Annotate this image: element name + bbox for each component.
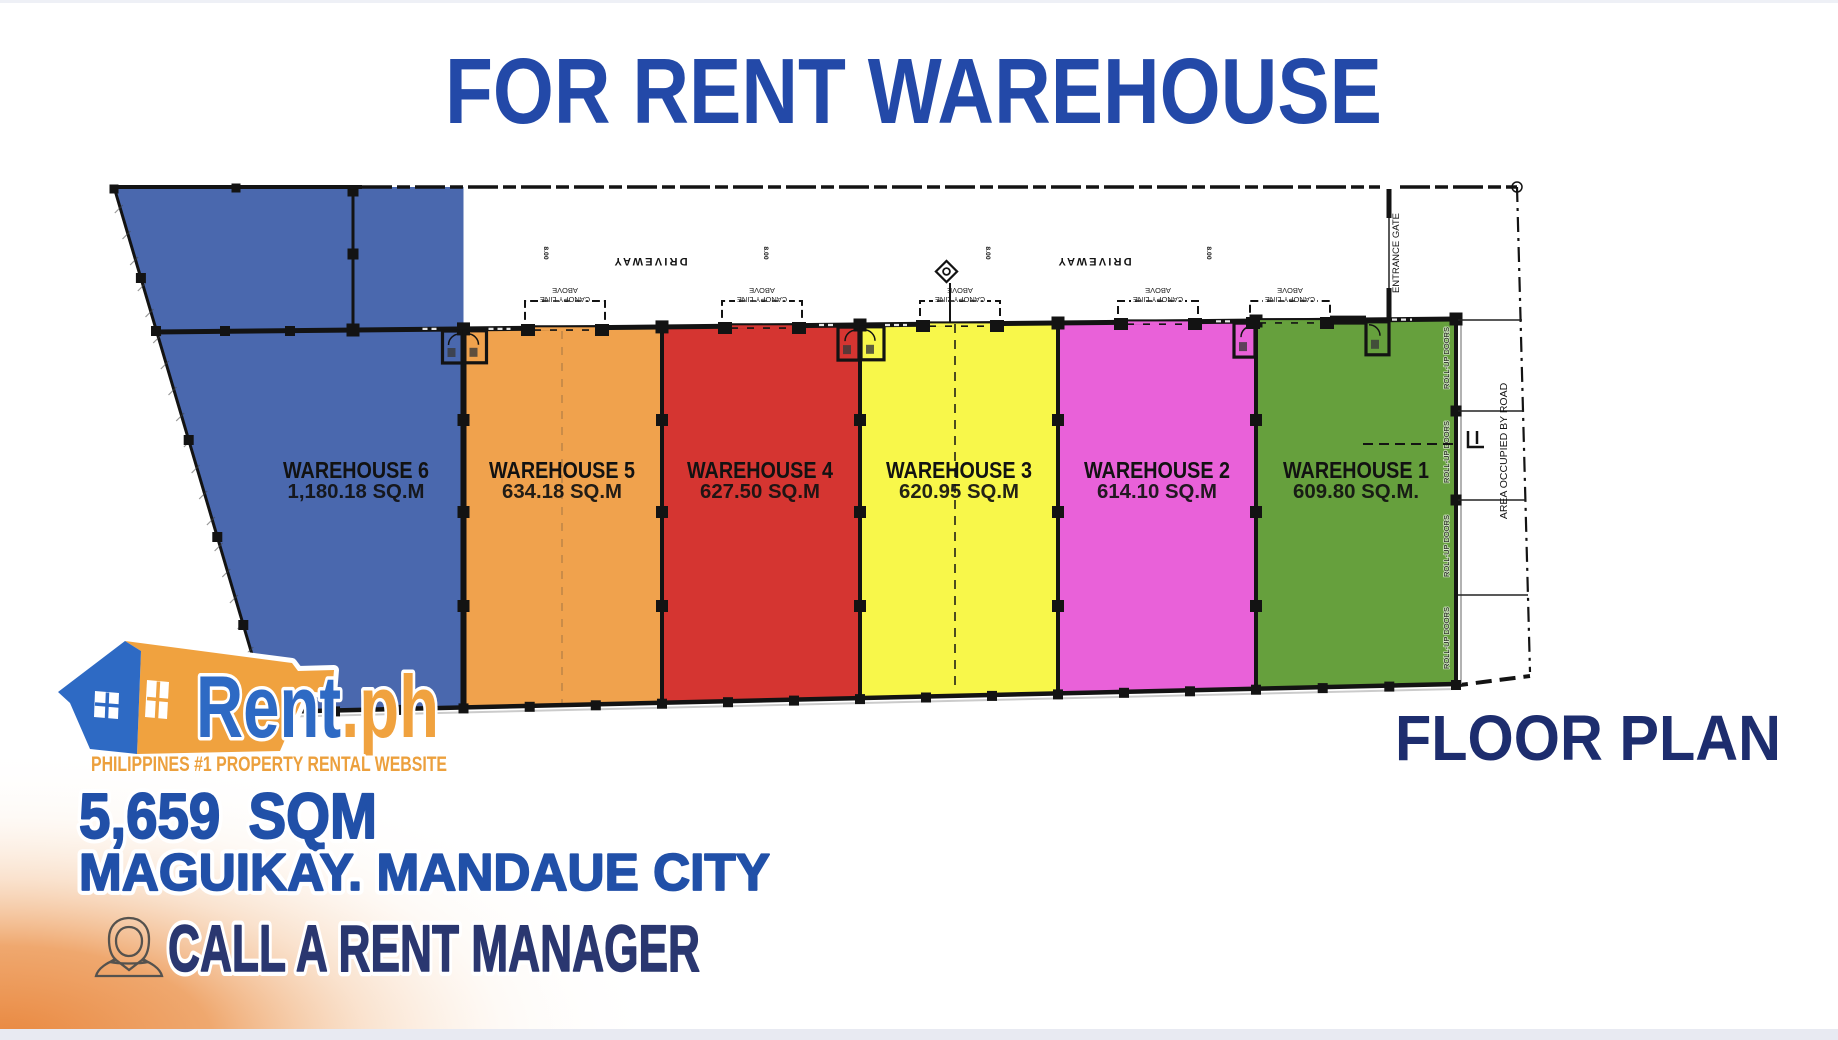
svg-text:ROLL-UP DOORS: ROLL-UP DOORS [1442, 607, 1451, 669]
svg-text:CANOPY LINE: CANOPY LINE [737, 295, 787, 304]
svg-text:CANOPY LINE: CANOPY LINE [935, 295, 985, 304]
svg-text:ROLL-UP DOORS: ROLL-UP DOORS [1442, 327, 1451, 389]
svg-text:ENTRANCE GATE: ENTRANCE GATE [1391, 213, 1402, 293]
svg-text:ABOVE: ABOVE [1277, 286, 1303, 295]
svg-text:CALL A RENT MANAGER: CALL A RENT MANAGER [168, 911, 700, 985]
svg-text:5,659 SQM: 5,659 SQM [79, 780, 377, 852]
svg-text:8.00: 8.00 [1205, 246, 1212, 259]
svg-text:FLOOR PLAN: FLOOR PLAN [1395, 702, 1781, 774]
svg-text:ABOVE: ABOVE [1145, 286, 1171, 295]
svg-text:8.00: 8.00 [984, 246, 991, 259]
svg-text:CANOPY LINE: CANOPY LINE [1265, 295, 1315, 304]
svg-text:1,180.18 SQ.M: 1,180.18 SQ.M [288, 480, 425, 503]
svg-text:DRIVEWAY: DRIVEWAY [1056, 255, 1131, 267]
svg-text:8.00: 8.00 [762, 246, 769, 259]
svg-text:AREA OCCUPIED BY ROAD: AREA OCCUPIED BY ROAD [1498, 382, 1510, 519]
svg-text:CANOPY LINE: CANOPY LINE [1133, 295, 1183, 304]
svg-text:DRIVEWAY: DRIVEWAY [612, 255, 687, 267]
svg-text:620.95 SQ.M: 620.95 SQ.M [899, 480, 1019, 503]
svg-text:8.00: 8.00 [542, 246, 549, 259]
svg-text:614.10 SQ.M: 614.10 SQ.M [1097, 480, 1217, 503]
svg-text:ABOVE: ABOVE [552, 286, 578, 295]
svg-text:CANOPY LINE: CANOPY LINE [540, 295, 590, 304]
svg-text:ROLL-UP DOORS: ROLL-UP DOORS [1442, 515, 1451, 577]
svg-text:ABOVE: ABOVE [749, 286, 775, 295]
svg-text:ROLL-UP DOORS: ROLL-UP DOORS [1442, 421, 1451, 483]
svg-text:609.80 SQ.M.: 609.80 SQ.M. [1293, 480, 1419, 503]
svg-text:Rent.ph: Rent.ph [196, 657, 439, 756]
svg-text:627.50 SQ.M: 627.50 SQ.M [700, 480, 820, 503]
svg-text:PHILIPPINES #1 PROPERTY RENTAL: PHILIPPINES #1 PROPERTY RENTAL WEBSITE [91, 753, 447, 776]
svg-text:FOR RENT WAREHOUSE: FOR RENT WAREHOUSE [445, 39, 1382, 143]
svg-text:MAGUIKAY. MANDAUE CITY: MAGUIKAY. MANDAUE CITY [79, 844, 770, 902]
svg-text:634.18 SQ.M: 634.18 SQ.M [502, 480, 622, 503]
